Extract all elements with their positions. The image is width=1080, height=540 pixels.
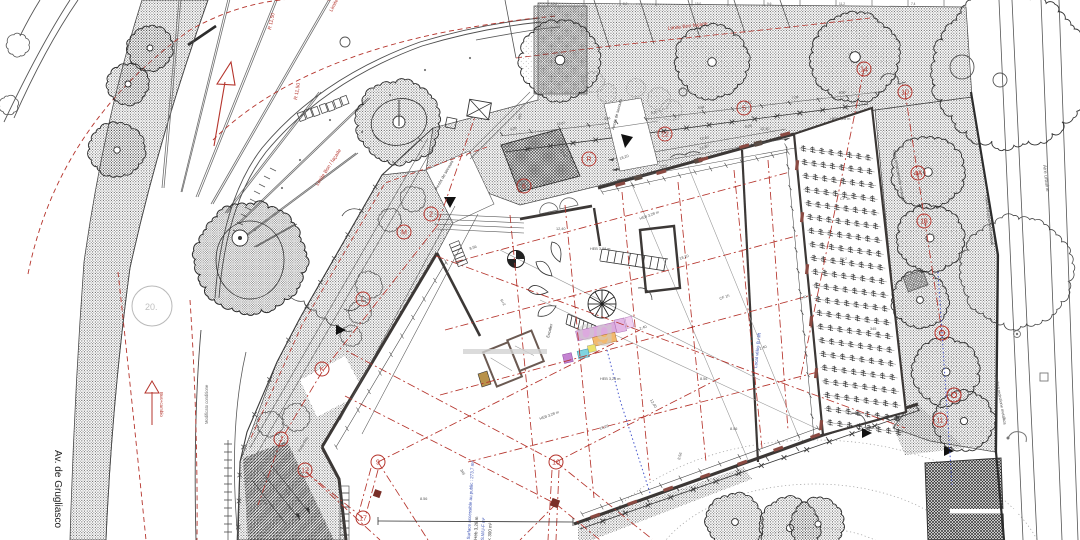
svg-text:Av. de Grugliasco: Av. de Grugliasco [52, 450, 63, 528]
svg-text:J: J [279, 437, 283, 444]
svg-text:8.56: 8.56 [700, 377, 707, 381]
svg-text:K: K [320, 367, 325, 374]
svg-text:7,4: 7,4 [911, 2, 916, 6]
svg-text:Modificato conditione: Modificato conditione [204, 384, 209, 424]
svg-text:13: 13 [920, 219, 928, 226]
svg-text:HEB 3,28 m: HEB 3,28 m [830, 117, 850, 121]
svg-text:20.: 20. [145, 302, 158, 312]
svg-text:og: og [577, 314, 614, 347]
svg-text:6,50: 6,50 [839, 90, 846, 95]
svg-text:8,2: 8,2 [623, 2, 628, 6]
svg-text:6: 6 [522, 184, 526, 191]
svg-text:4A: 4A [914, 171, 923, 178]
svg-text:5,64: 5,64 [698, 105, 705, 110]
svg-text:12,40: 12,40 [556, 227, 566, 231]
svg-text:345: 345 [870, 327, 876, 331]
svg-text:10: 10 [552, 460, 560, 467]
svg-text:11: 11 [936, 418, 943, 425]
svg-text:4,35: 4,35 [510, 126, 517, 131]
svg-text:< 300 m²: < 300 m² [487, 522, 493, 540]
svg-text:M: M [401, 230, 407, 237]
svg-text:12,40: 12,40 [760, 127, 770, 131]
svg-text:9,12: 9,12 [745, 100, 752, 105]
svg-text:HEB 3,28 m: HEB 3,28 m [590, 247, 610, 251]
svg-text:8,20: 8,20 [651, 110, 658, 115]
svg-text:5: 5 [742, 106, 746, 113]
svg-text:7,08: 7,08 [792, 95, 799, 100]
svg-text:2: 2 [429, 212, 433, 219]
svg-text:HEB 3,28 m: HEB 3,28 m [600, 377, 620, 381]
svg-text:15,0: 15,0 [695, 2, 701, 6]
svg-text:12: 12 [301, 468, 309, 475]
svg-text:9: 9 [376, 460, 380, 467]
svg-text:R+2: R+2 [840, 257, 847, 261]
svg-text:8.56: 8.56 [420, 497, 427, 501]
svg-text:Bus+cambio: Bus+cambio [159, 392, 164, 417]
svg-text:CF 1h: CF 1h [840, 197, 850, 201]
svg-text:14: 14 [860, 67, 868, 74]
svg-text:8.56: 8.56 [730, 427, 737, 431]
svg-text:12,4: 12,4 [551, 2, 557, 6]
svg-text:9,6: 9,6 [767, 2, 772, 6]
svg-text:22: 22 [661, 132, 669, 139]
svg-text:11,2: 11,2 [839, 2, 845, 6]
svg-text:10: 10 [901, 90, 909, 97]
svg-text:17: 17 [359, 516, 367, 523]
svg-text:L: L [361, 297, 365, 304]
svg-text:R: R [586, 157, 591, 164]
svg-text:3,56: 3,56 [604, 116, 611, 121]
